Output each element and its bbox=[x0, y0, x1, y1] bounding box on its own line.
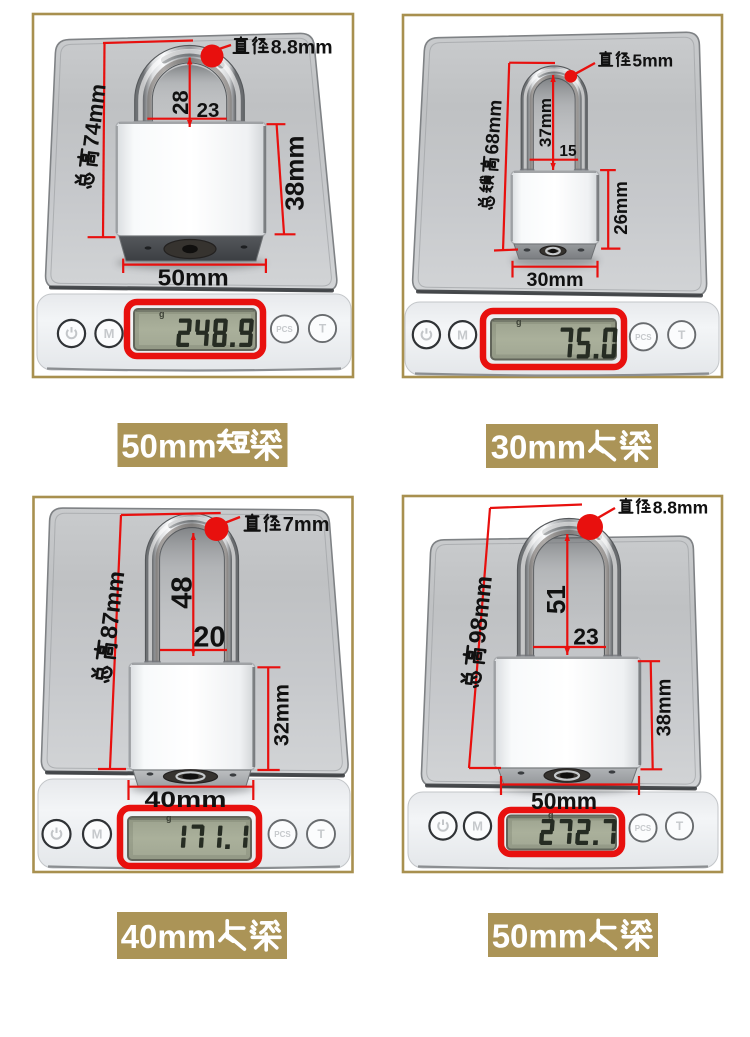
svg-text:g: g bbox=[516, 317, 522, 327]
svg-text:M: M bbox=[457, 327, 468, 342]
svg-text:50mm: 50mm bbox=[121, 427, 216, 464]
svg-text:M: M bbox=[472, 819, 483, 834]
svg-text:38mm: 38mm bbox=[279, 135, 309, 210]
svg-text:37mm: 37mm bbox=[536, 98, 555, 147]
svg-text:PCS: PCS bbox=[635, 333, 652, 342]
svg-text:68mm: 68mm bbox=[482, 99, 507, 155]
svg-text:T: T bbox=[676, 819, 684, 833]
svg-text:40mm: 40mm bbox=[121, 918, 216, 955]
svg-text:M: M bbox=[104, 326, 115, 341]
svg-text:40mm: 40mm bbox=[145, 787, 227, 812]
svg-text:T: T bbox=[319, 322, 327, 336]
svg-text:g: g bbox=[166, 813, 172, 823]
svg-text:23: 23 bbox=[197, 99, 220, 122]
svg-text:5mm: 5mm bbox=[632, 50, 673, 70]
svg-text:38mm: 38mm bbox=[654, 679, 676, 737]
svg-text:15: 15 bbox=[559, 143, 577, 160]
svg-text:T: T bbox=[317, 827, 325, 841]
svg-text:26mm: 26mm bbox=[610, 181, 631, 234]
svg-text:PCS: PCS bbox=[274, 830, 291, 839]
svg-text:PCS: PCS bbox=[276, 325, 293, 334]
svg-text:48: 48 bbox=[166, 577, 198, 609]
svg-text:30mm: 30mm bbox=[491, 428, 586, 465]
svg-text:50mm: 50mm bbox=[158, 265, 229, 291]
svg-text:50mm: 50mm bbox=[531, 788, 597, 814]
svg-text:32mm: 32mm bbox=[270, 684, 294, 746]
svg-text:8.8mm: 8.8mm bbox=[653, 497, 708, 517]
svg-text:30mm: 30mm bbox=[527, 270, 584, 291]
svg-text:20: 20 bbox=[193, 621, 225, 653]
svg-text:T: T bbox=[678, 328, 686, 342]
svg-text:g: g bbox=[159, 309, 165, 319]
svg-text:8.8mm: 8.8mm bbox=[271, 37, 333, 59]
svg-text:7mm: 7mm bbox=[283, 514, 330, 536]
svg-text:PCS: PCS bbox=[635, 824, 652, 833]
svg-text:M: M bbox=[92, 827, 103, 842]
svg-text:28: 28 bbox=[168, 90, 193, 114]
svg-text:23: 23 bbox=[573, 624, 599, 650]
svg-text:51: 51 bbox=[541, 585, 571, 614]
svg-text:50mm: 50mm bbox=[492, 917, 587, 954]
